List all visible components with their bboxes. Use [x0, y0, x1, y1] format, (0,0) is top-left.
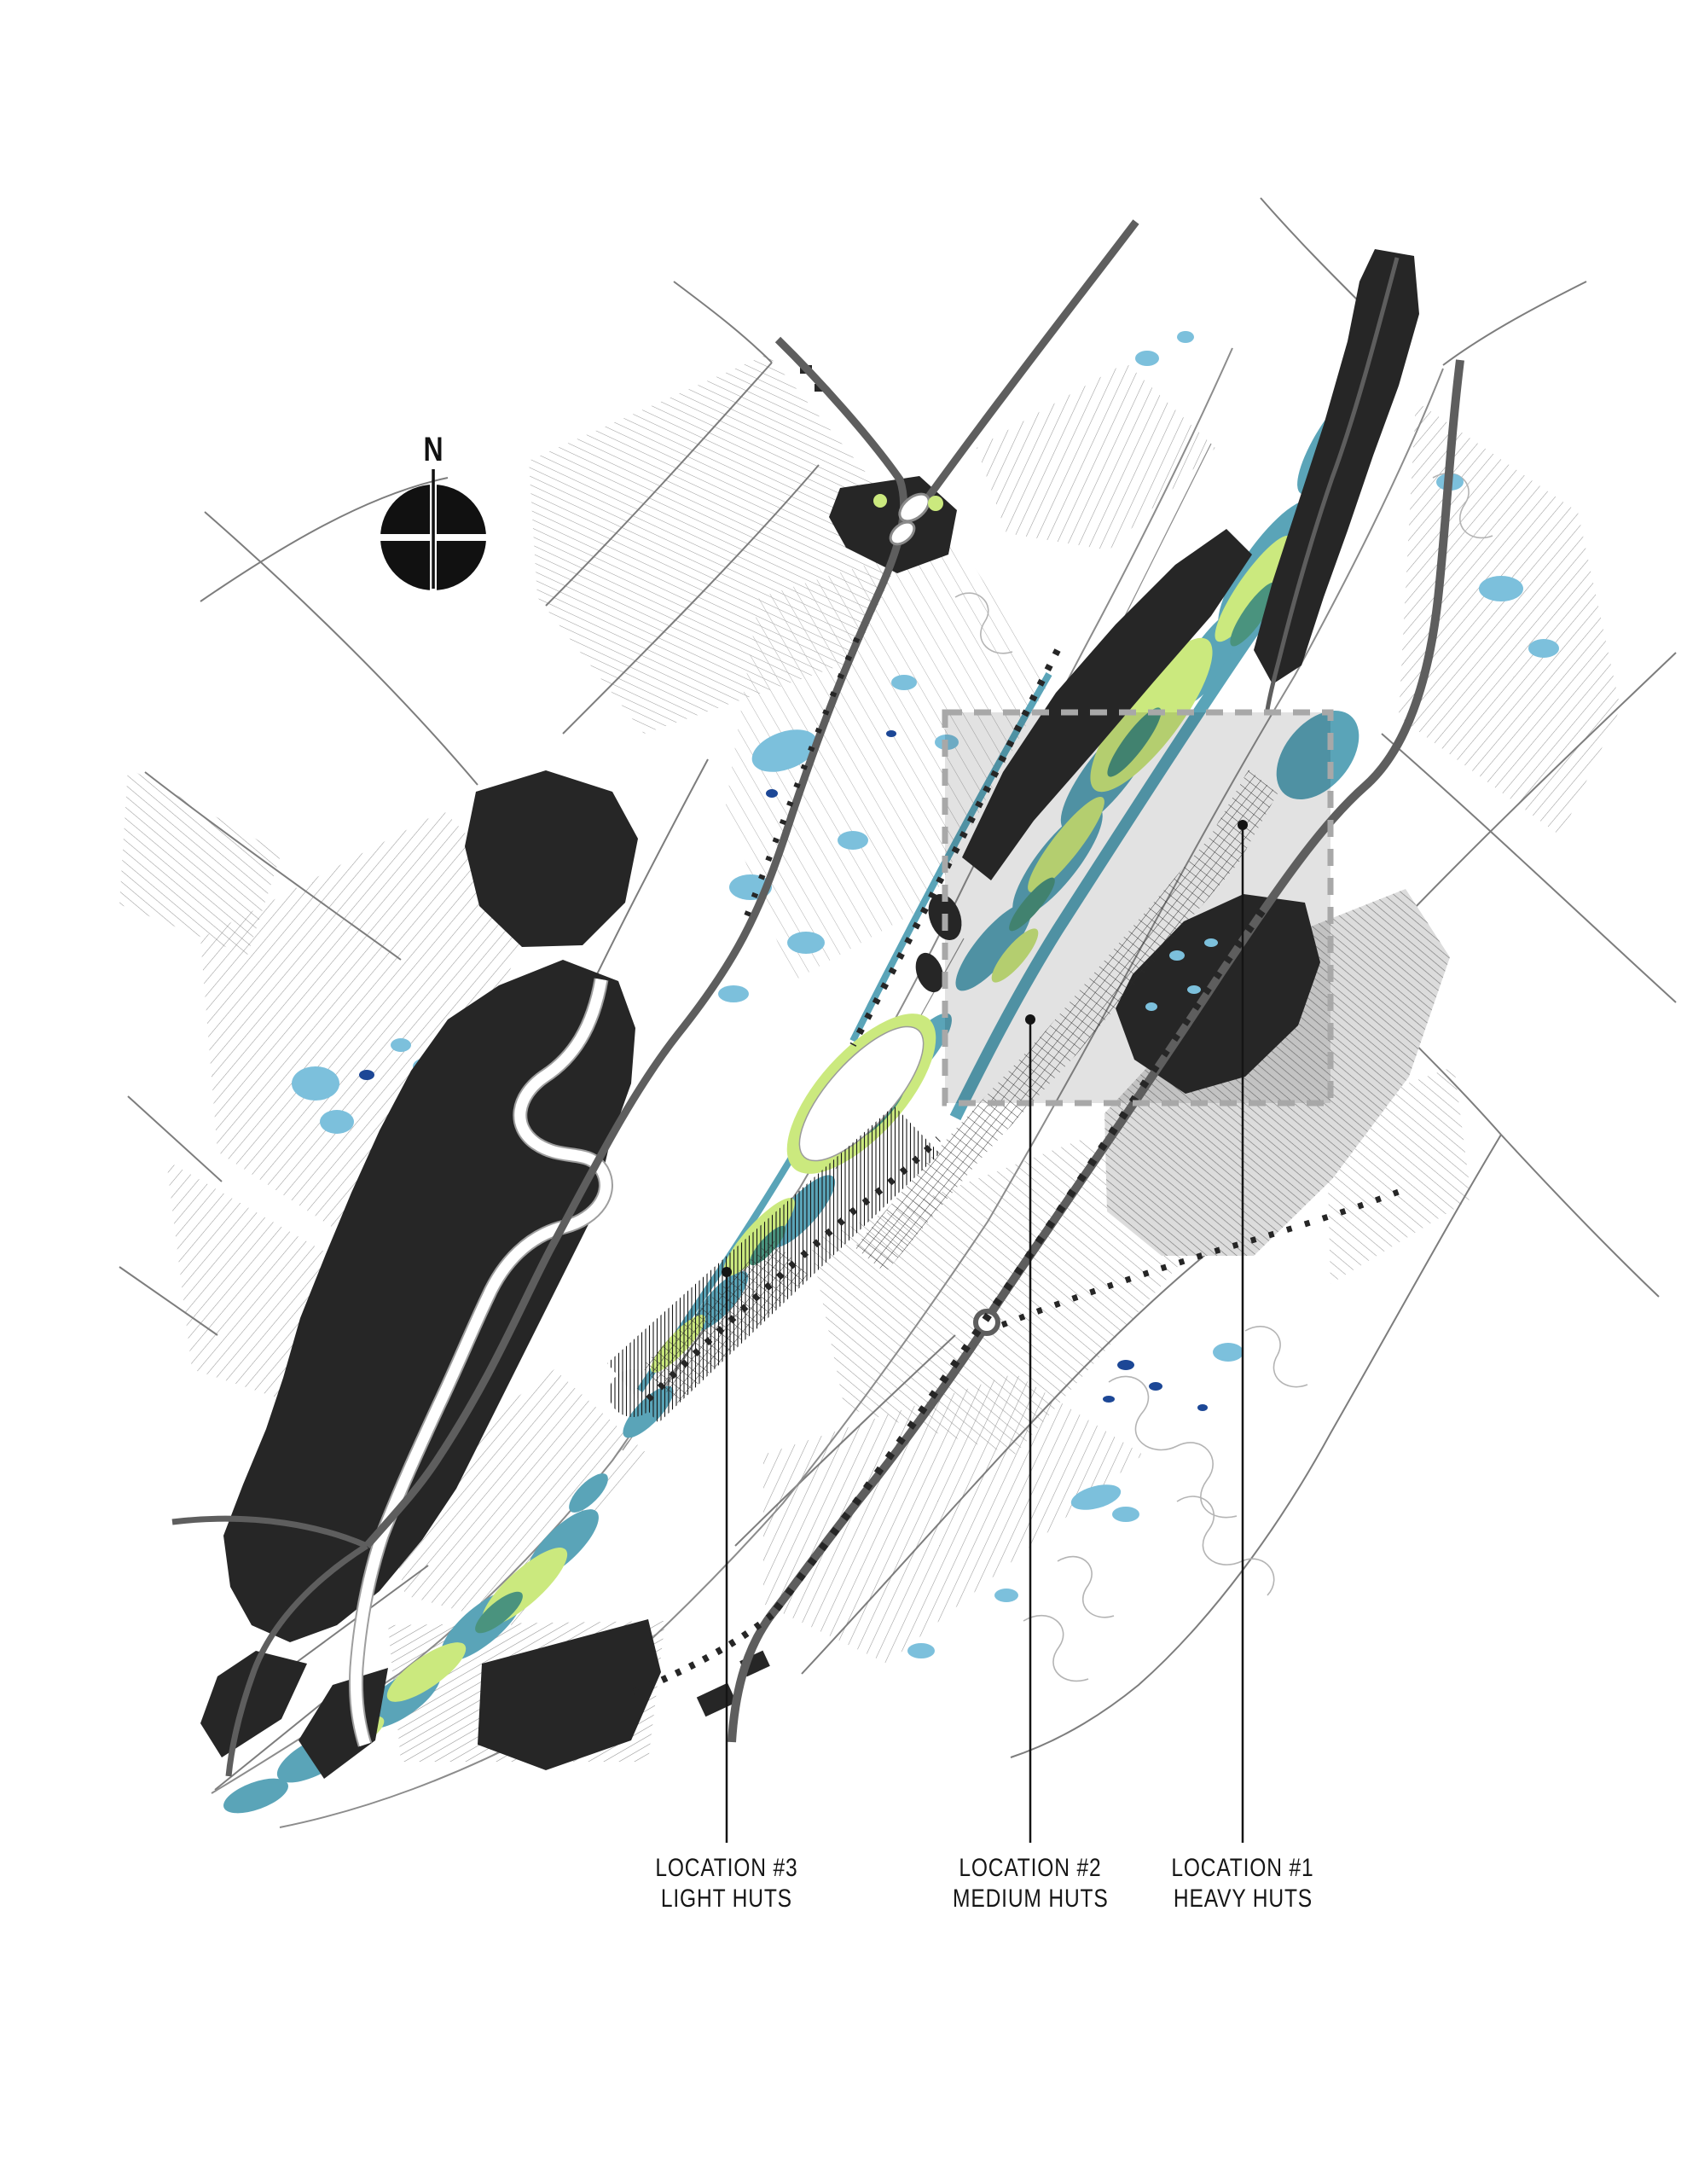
location-1-title: LOCATION #1 — [1171, 1853, 1313, 1884]
location-1-subtitle: HEAVY HUTS — [1173, 1884, 1312, 1914]
label-location-1: LOCATION #1 HEAVY HUTS — [1123, 1853, 1362, 1914]
label-location-2: LOCATION #2 MEDIUM HUTS — [911, 1853, 1150, 1914]
label-location-3: LOCATION #3 LIGHT HUTS — [607, 1853, 846, 1914]
compass-north-icon — [379, 469, 488, 592]
location-2-subtitle: MEDIUM HUTS — [953, 1884, 1109, 1914]
location-3-title: LOCATION #3 — [655, 1853, 797, 1884]
compass-north-label: N — [416, 431, 450, 469]
location-2-title: LOCATION #2 — [959, 1853, 1101, 1884]
site-analysis-map-page: N LOCATION #3 LIGHT HUTS LOCATION #2 MED… — [0, 0, 1687, 2184]
location-3-subtitle: LIGHT HUTS — [661, 1884, 792, 1914]
